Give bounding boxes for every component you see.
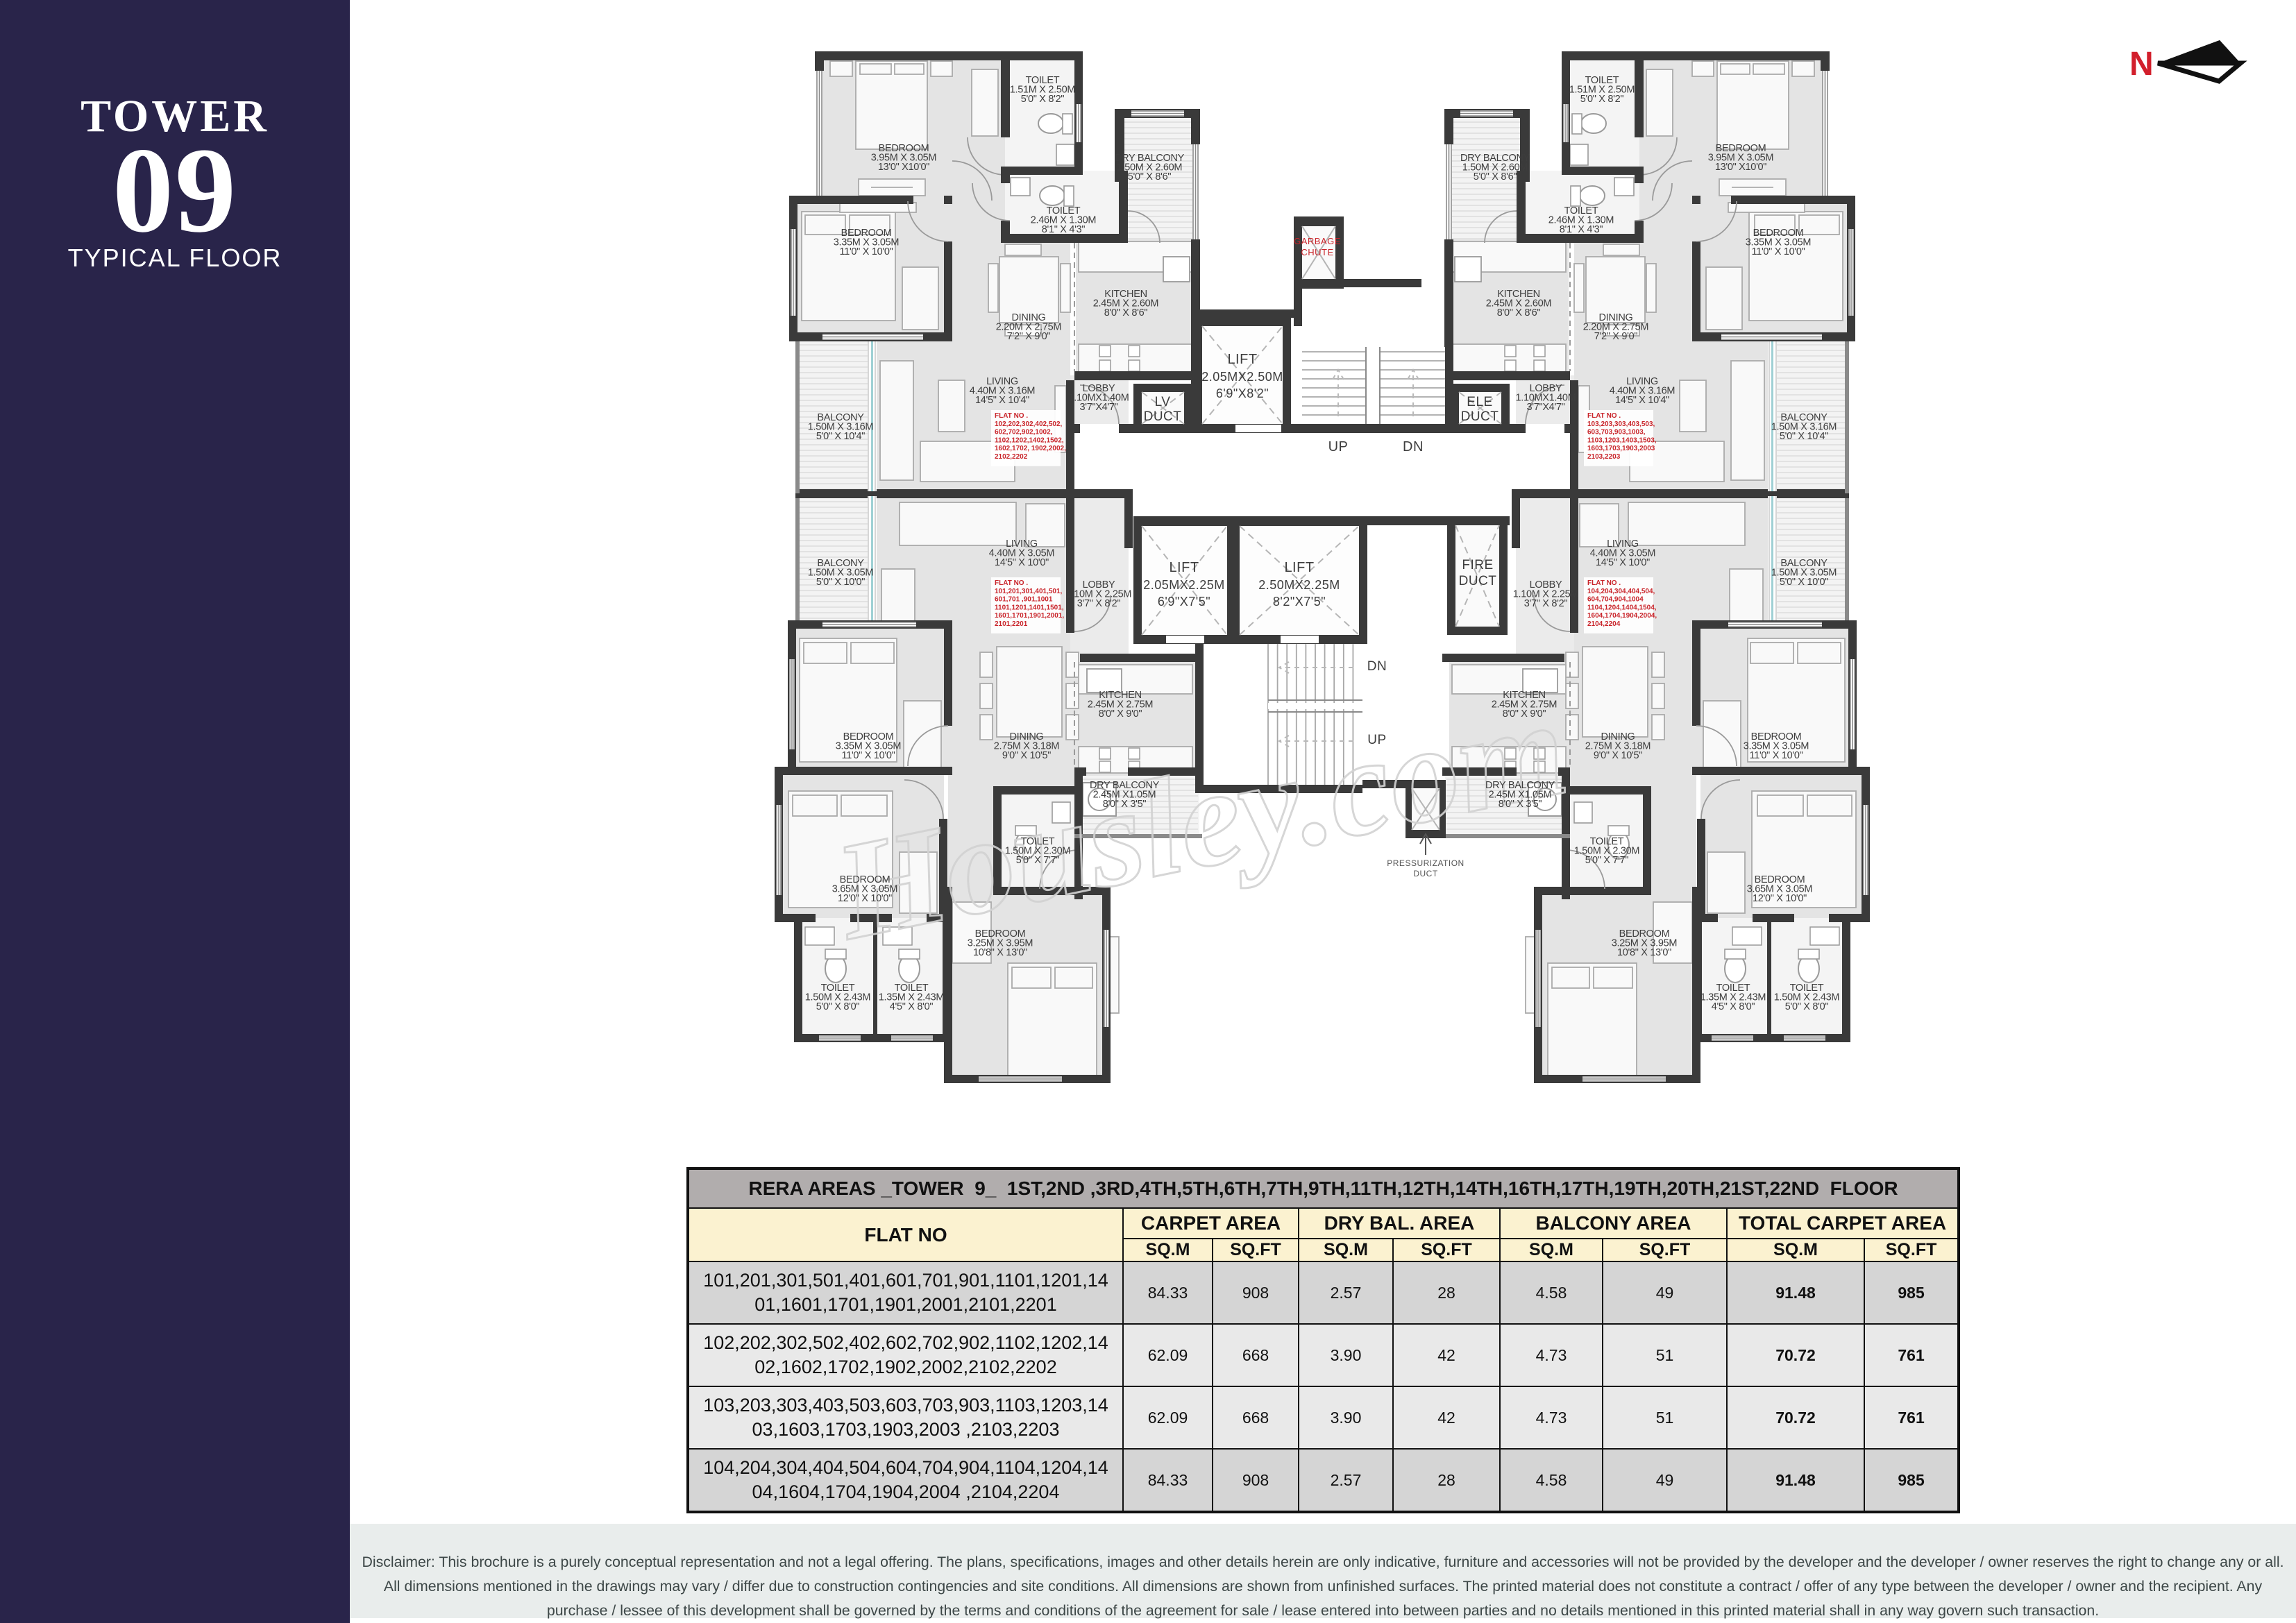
svg-text:1104,1204,1404,1504,: 1104,1204,1404,1504, [1587, 604, 1657, 611]
svg-text:5'0" X 10'0": 5'0" X 10'0" [816, 577, 865, 588]
svg-text:5'0" X 7'7": 5'0" X 7'7" [1016, 855, 1060, 866]
svg-text:5'0" X 7'7": 5'0" X 7'7" [1585, 855, 1629, 866]
svg-text:1101,1201,1401,1501,: 1101,1201,1401,1501, [995, 604, 1064, 611]
svg-text:8'0" X 8'6": 8'0" X 8'6" [1497, 307, 1541, 318]
svg-text:14'5" X 10'4": 14'5" X 10'4" [975, 395, 1029, 406]
svg-text:N: N [2129, 46, 2154, 83]
svg-text:FIRE: FIRE [1462, 558, 1493, 572]
svg-text:1103,1203,1403,1503,: 1103,1203,1403,1503, [1587, 436, 1657, 444]
svg-text:5'0" X 8'0": 5'0" X 8'0" [1785, 1001, 1829, 1012]
svg-text:12'0" X 10'0": 12'0" X 10'0" [1753, 893, 1807, 904]
svg-text:GARBAGE: GARBAGE [1294, 236, 1341, 246]
svg-text:1102,1202,1402,1502,: 1102,1202,1402,1502, [995, 436, 1064, 444]
svg-text:10'8" X 13'0": 10'8" X 13'0" [973, 947, 1027, 958]
svg-text:10'8" X 13'0": 10'8" X 13'0" [1617, 947, 1671, 958]
svg-text:1602,1702, 1902,2002,: 1602,1702, 1902,2002, [995, 445, 1066, 452]
svg-text:5'0" X 8'2": 5'0" X 8'2" [1021, 94, 1065, 105]
svg-text:2.05MX2.50M: 2.05MX2.50M [1201, 370, 1283, 384]
svg-text:11'0" X 10'0": 11'0" X 10'0" [1752, 246, 1805, 257]
svg-text:1604,1704,1904,2004,: 1604,1704,1904,2004, [1587, 612, 1657, 620]
svg-text:DUCT: DUCT [1413, 869, 1437, 878]
svg-text:2.50MX2.25M: 2.50MX2.25M [1258, 578, 1340, 592]
svg-text:13'0" X10'0": 13'0" X10'0" [1715, 162, 1766, 173]
svg-text:8'1" X 4'3": 8'1" X 4'3" [1042, 224, 1086, 235]
svg-text:2104,2204: 2104,2204 [1587, 620, 1621, 628]
svg-text:101,201,301,401,501,: 101,201,301,401,501, [995, 588, 1063, 595]
svg-text:5'0" X 8'2": 5'0" X 8'2" [1580, 94, 1624, 105]
svg-text:FLAT NO .: FLAT NO . [1587, 412, 1621, 420]
svg-text:4'5" X 8'0": 4'5" X 8'0" [1712, 1001, 1755, 1012]
svg-text:5'0" X 8'6": 5'0" X 8'6" [1474, 171, 1517, 182]
svg-text:12'0" X 10'0": 12'0" X 10'0" [838, 893, 892, 904]
svg-text:2.05MX2.25M: 2.05MX2.25M [1143, 578, 1225, 592]
svg-text:2102,2202: 2102,2202 [995, 453, 1028, 461]
svg-text:LIFT: LIFT [1227, 352, 1257, 367]
svg-text:8'2"X7'5": 8'2"X7'5" [1273, 595, 1326, 609]
svg-text:5'0" X 10'0": 5'0" X 10'0" [1780, 577, 1828, 588]
svg-text:5'0" X 8'6": 5'0" X 8'6" [1128, 171, 1172, 182]
svg-text:11'0" X 10'0": 11'0" X 10'0" [840, 246, 893, 257]
svg-text:14'5" X 10'0": 14'5" X 10'0" [995, 557, 1049, 568]
svg-text:ELE: ELE [1467, 395, 1492, 409]
svg-text:6'9"X7'5": 6'9"X7'5" [1158, 595, 1210, 609]
svg-text:5'0" X 10'4": 5'0" X 10'4" [1780, 431, 1828, 442]
svg-text:2103,2203: 2103,2203 [1587, 453, 1621, 461]
svg-text:102,202,302,402,502,: 102,202,302,402,502, [995, 420, 1063, 428]
svg-text:LIFT: LIFT [1284, 560, 1314, 575]
svg-text:602,702,902,1002,: 602,702,902,1002, [995, 429, 1053, 436]
svg-text:7'2" X 9'0": 7'2" X 9'0" [1594, 331, 1638, 342]
svg-text:UP: UP [1328, 439, 1349, 454]
svg-text:6'9"X8'2": 6'9"X8'2" [1216, 386, 1269, 400]
svg-text:11'0" X 10'0": 11'0" X 10'0" [1750, 750, 1803, 761]
svg-text:3'7" X 8'2": 3'7" X 8'2" [1077, 598, 1121, 609]
svg-text:UP: UP [1367, 733, 1386, 747]
svg-text:603,703,903,1003,: 603,703,903,1003, [1587, 429, 1646, 436]
svg-text:2101,2201: 2101,2201 [995, 620, 1028, 628]
svg-text:FLAT NO .: FLAT NO . [995, 412, 1028, 420]
svg-text:1601,1701,1901,2001,: 1601,1701,1901,2001, [995, 612, 1064, 620]
svg-text:DN: DN [1403, 439, 1424, 454]
svg-text:601,701 ,901,1001: 601,701 ,901,1001 [995, 596, 1053, 604]
svg-text:4'5" X 8'0": 4'5" X 8'0" [890, 1001, 934, 1012]
svg-text:DUCT: DUCT [1459, 574, 1497, 588]
svg-text:8'0" X 8'6": 8'0" X 8'6" [1104, 307, 1148, 318]
svg-text:FLAT NO .: FLAT NO . [995, 579, 1028, 587]
svg-text:3'7"X4'7": 3'7"X4'7" [1079, 402, 1117, 413]
svg-text:FLAT NO .: FLAT NO . [1587, 579, 1621, 587]
svg-text:5'0" X 10'4": 5'0" X 10'4" [816, 431, 865, 442]
svg-text:3'7"X4'7": 3'7"X4'7" [1526, 402, 1564, 413]
svg-text:DN: DN [1367, 659, 1387, 674]
svg-text:14'5" X 10'4": 14'5" X 10'4" [1615, 395, 1669, 406]
svg-text:104,204,304,404,504,: 104,204,304,404,504, [1587, 588, 1655, 595]
svg-text:604,704,904,1004: 604,704,904,1004 [1587, 596, 1644, 604]
svg-text:CHUTE: CHUTE [1301, 247, 1333, 257]
svg-text:14'5" X 10'0": 14'5" X 10'0" [1596, 557, 1650, 568]
svg-text:LIFT: LIFT [1169, 560, 1199, 575]
svg-text:8'0" X 3'5": 8'0" X 3'5" [1103, 799, 1147, 810]
svg-text:9'0" X 10'5": 9'0" X 10'5" [1594, 750, 1642, 761]
svg-text:13'0" X10'0": 13'0" X10'0" [878, 162, 929, 173]
svg-text:8'0" X 9'0": 8'0" X 9'0" [1099, 708, 1142, 720]
svg-text:9'0" X 10'5": 9'0" X 10'5" [1002, 750, 1051, 761]
svg-text:3'7" X 8'2": 3'7" X 8'2" [1524, 598, 1568, 609]
svg-text:8'0" X 9'0": 8'0" X 9'0" [1503, 708, 1546, 720]
svg-text:1603,1703,1903,2003: 1603,1703,1903,2003 [1587, 445, 1655, 452]
svg-text:DUCT: DUCT [1461, 409, 1499, 424]
svg-text:DUCT: DUCT [1144, 409, 1182, 424]
svg-text:8'0" X 3'5": 8'0" X 3'5" [1499, 799, 1542, 810]
svg-text:LV: LV [1155, 395, 1171, 409]
svg-text:PRESSURIZATION: PRESSURIZATION [1387, 858, 1464, 868]
svg-text:11'0" X 10'0": 11'0" X 10'0" [842, 750, 895, 761]
svg-text:103,203,303,403,503,: 103,203,303,403,503, [1587, 420, 1655, 428]
svg-text:8'1" X 4'3": 8'1" X 4'3" [1560, 224, 1603, 235]
svg-text:7'2" X 9'0": 7'2" X 9'0" [1007, 331, 1051, 342]
svg-text:5'0" X 8'0": 5'0" X 8'0" [816, 1001, 860, 1012]
